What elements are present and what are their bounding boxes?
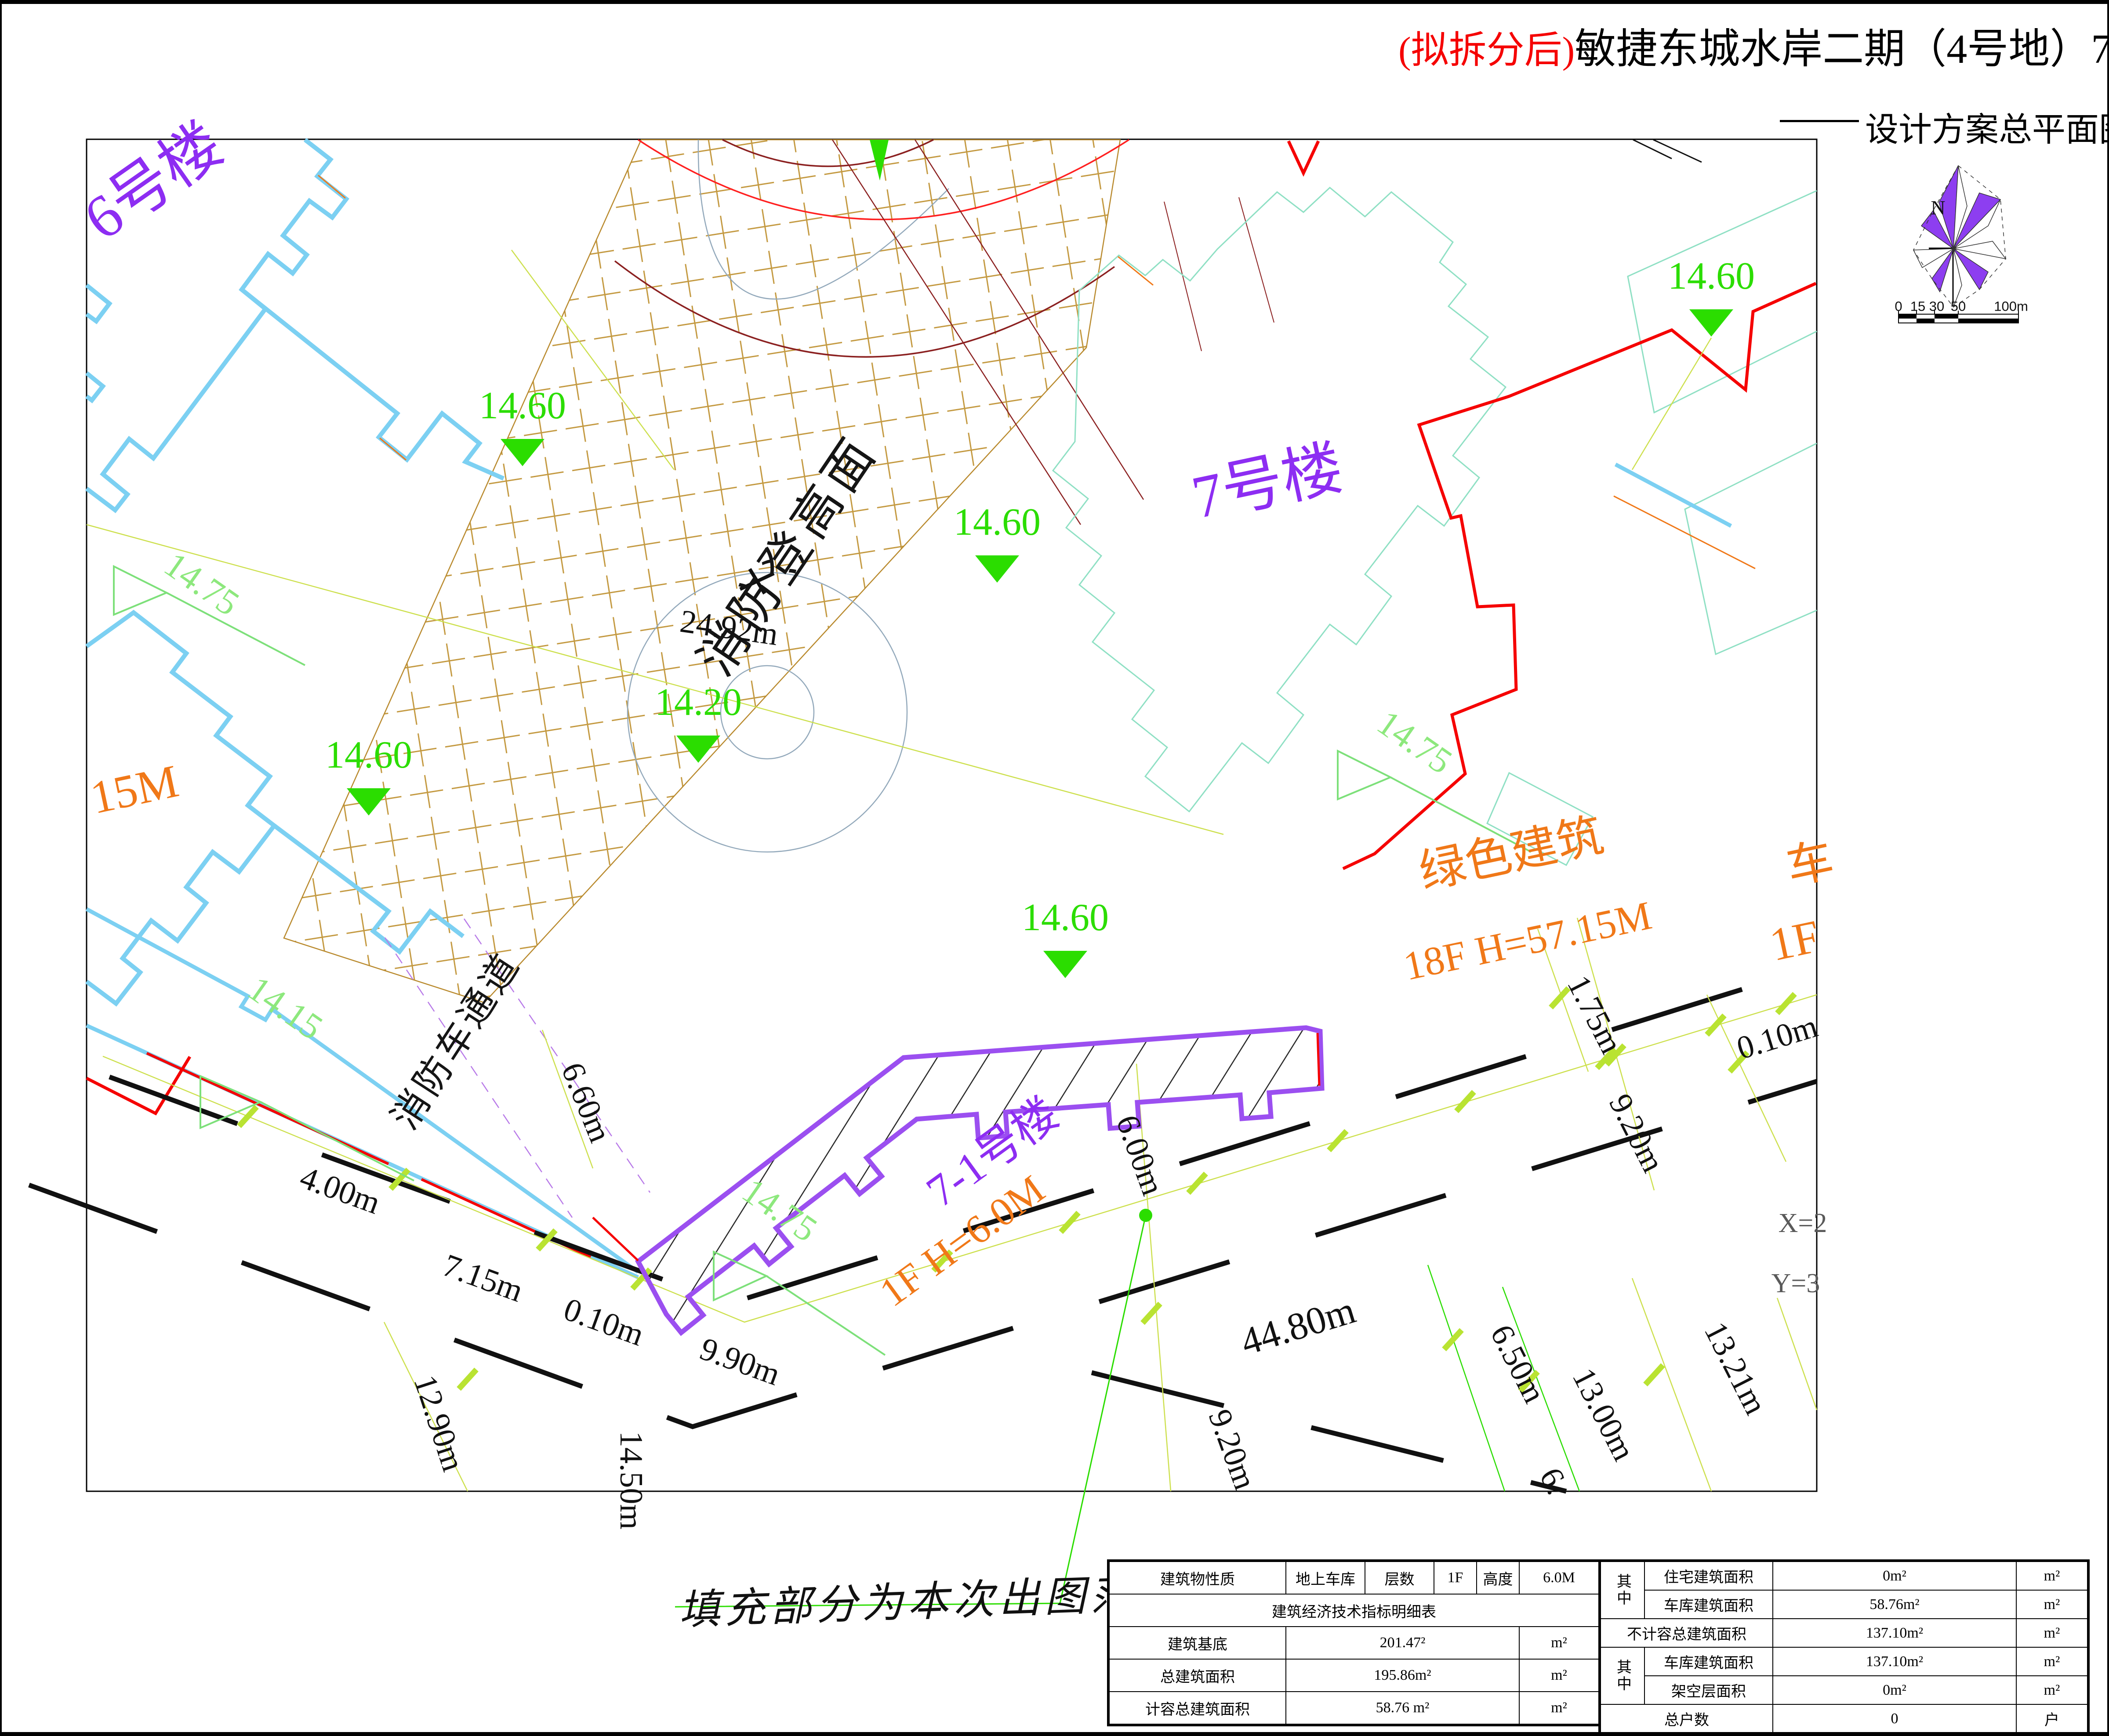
- cell: 201.47²: [1286, 1627, 1519, 1659]
- plan-label-50: 50: [1951, 300, 1966, 313]
- north-arrow: [1913, 166, 2006, 307]
- cell: 层数: [1365, 1561, 1434, 1594]
- sheet-subtitle: 设计方案总平面图: [1865, 102, 2109, 151]
- plan-label-14.60: 14.60: [954, 503, 1041, 542]
- cell: m²: [1519, 1692, 1600, 1725]
- plan-label-14.60: 14.60: [1022, 899, 1109, 937]
- plan-label-1F: 1F: [1766, 913, 1824, 969]
- cell: 高度: [1477, 1561, 1519, 1594]
- plan-label-14.60: 14.60: [1668, 257, 1755, 296]
- plan-label-14.50m: 14.50m: [615, 1431, 647, 1529]
- cell: 0m²: [1773, 1676, 2016, 1704]
- cell: 计容总建筑面积: [1108, 1692, 1286, 1725]
- plan-label-车: 车: [1782, 837, 1838, 892]
- cell: 195.86m²: [1286, 1659, 1519, 1692]
- title-prefix: (拟拆分后): [1398, 29, 1575, 71]
- green-dim-lines: [1428, 1265, 1579, 1491]
- cell: 58.76 m²: [1286, 1692, 1519, 1725]
- plan-label-N: N: [1931, 198, 1945, 218]
- index-table-left: 建筑物性质 地上车库 层数 1F 高度 6.0M 建筑经济技术指标明细表 建筑基…: [1107, 1559, 1601, 1726]
- cell: m²: [1519, 1659, 1600, 1692]
- cell: 0: [1773, 1704, 2016, 1734]
- cell: m²: [2016, 1619, 2088, 1647]
- cell: 137.10m²: [1773, 1619, 2016, 1647]
- cell: 车库建筑面积: [1644, 1590, 1773, 1619]
- cell: 1F: [1434, 1561, 1477, 1594]
- road-dashed: [29, 966, 1817, 1491]
- title-main: 敏捷东城水岸二期（4号地）7-1号楼: [1575, 26, 2109, 72]
- cell: 车库建筑面积: [1644, 1647, 1773, 1676]
- cell: 总建筑面积: [1108, 1659, 1286, 1692]
- cell: 不计容总建筑面积: [1600, 1619, 1773, 1647]
- cell: m²: [2016, 1676, 2088, 1704]
- cell: 建筑物性质: [1108, 1561, 1286, 1594]
- cell: 137.10m²: [1773, 1647, 2016, 1676]
- cell: 6.0M: [1519, 1561, 1600, 1594]
- table-title: 建筑经济技术指标明细表: [1108, 1594, 1600, 1627]
- cell: 架空层面积: [1644, 1676, 1773, 1704]
- plan-label-0: 0: [1895, 300, 1902, 313]
- index-table-right: 其中 住宅建筑面积 0m² m² 车库建筑面积 58.76m² m² 不计容总建…: [1598, 1559, 2090, 1735]
- plan-label-30: 30: [1929, 300, 1944, 313]
- cell: m²: [2016, 1590, 2088, 1619]
- group-label: 其中: [1600, 1561, 1644, 1619]
- cell: m²: [2016, 1561, 2088, 1590]
- plan-label-14.60: 14.60: [479, 387, 566, 425]
- cell: 地上车库: [1286, 1561, 1365, 1594]
- cell: 0m²: [1773, 1561, 2016, 1590]
- cell: 建筑基底: [1108, 1627, 1286, 1659]
- subtitle-dash: [1780, 120, 1859, 122]
- cell: 58.76m²: [1773, 1590, 2016, 1619]
- plan-label-14.60: 14.60: [325, 736, 412, 775]
- cell: 总户数: [1600, 1704, 1773, 1734]
- drawing-sheet: (拟拆分后)敏捷东城水岸二期（4号地）7-1号楼 设计方案总平面图 填充部分为本…: [0, 0, 2109, 1736]
- plan-label-14.20: 14.20: [655, 683, 742, 722]
- plan-label-100m: 100m: [1994, 300, 2028, 313]
- cell: 户: [2016, 1704, 2088, 1734]
- sheet-title: (拟拆分后)敏捷东城水岸二期（4号地）7-1号楼: [1398, 15, 2109, 75]
- plan-label-15: 15: [1910, 300, 1925, 313]
- cell: 住宅建筑面积: [1644, 1561, 1773, 1590]
- plan-label-Y=3: Y=3: [1771, 1270, 1820, 1297]
- group-label: 其中: [1600, 1647, 1644, 1704]
- cell: m²: [2016, 1647, 2088, 1676]
- plan-label-X=2: X=2: [1779, 1210, 1827, 1237]
- cell: m²: [1519, 1627, 1600, 1659]
